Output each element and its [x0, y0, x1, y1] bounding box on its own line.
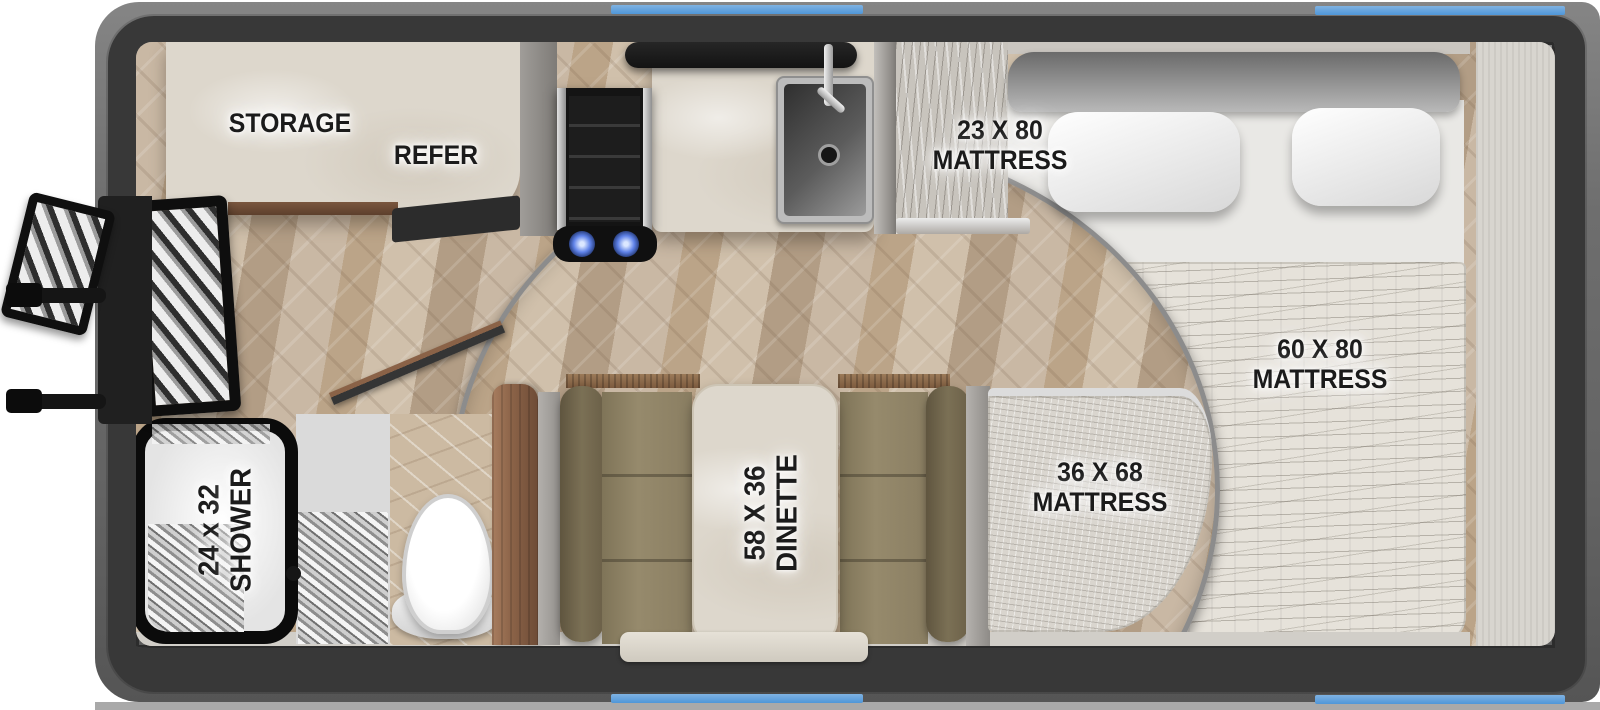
pillow-left	[1048, 112, 1240, 212]
bedroom-divider-wall	[966, 386, 990, 646]
shower-word: SHOWER	[226, 468, 258, 592]
dinette-label: 58 X 36 DINETTE	[740, 454, 805, 572]
dinette-backrest-left	[560, 386, 604, 642]
bunk-ledge	[896, 218, 1030, 234]
shower-drain-icon	[286, 566, 301, 581]
storage-label: STORAGE	[229, 108, 351, 138]
side-mattress-label: 36 X 68 MATTRESS	[1033, 457, 1168, 517]
cooktop-rail-right	[643, 88, 652, 230]
main-mattress-word: MATTRESS	[1253, 364, 1388, 394]
burner-icon-right	[613, 231, 639, 257]
cabinet-side-panel	[520, 42, 557, 236]
shower-size: 24 x 32	[194, 468, 226, 592]
window-marker-bottom-left	[611, 694, 863, 703]
side-mattress-word: MATTRESS	[1033, 487, 1168, 517]
cooktop-burner-base	[553, 226, 657, 262]
main-mattress-size: 60 X 80	[1253, 334, 1388, 364]
dinette-bench-left	[602, 392, 692, 644]
wardrobe-partition	[492, 384, 538, 645]
refrigerator-label: REFER	[394, 140, 478, 170]
dinette-backrest-right	[926, 386, 970, 642]
window-marker-top-right	[1315, 6, 1565, 15]
floorplan-page: { "floorplan": { "labels": { "storage": …	[0, 0, 1600, 710]
bunk-mattress-size: 23 X 80	[933, 115, 1068, 145]
pillow-right	[1292, 108, 1440, 206]
main-mattress-label: 60 X 80 MATTRESS	[1253, 334, 1388, 394]
bunk-mattress-word: MATTRESS	[933, 145, 1068, 175]
shower-curtain-top	[152, 424, 270, 444]
dinette-floor-platform	[620, 632, 868, 662]
cooktop-rail-left	[557, 88, 566, 230]
dinette-word: DINETTE	[772, 454, 804, 572]
right-interior-wall	[1470, 42, 1555, 646]
burner-icon-left	[569, 231, 595, 257]
sink-drain-icon	[818, 144, 840, 166]
cabinet-wood-edge	[228, 202, 398, 215]
cooktop-body	[557, 88, 652, 230]
interior-area: STORAGE REFER 23 X 80 MATTRESS 60 X 80 M…	[136, 42, 1555, 646]
bunk-mattress-label: 23 X 80 MATTRESS	[933, 115, 1068, 175]
side-mattress-size: 36 X 68	[1033, 457, 1168, 487]
shower-label: 24 x 32 SHOWER	[194, 468, 259, 592]
dinette-trim-right	[838, 374, 950, 388]
step-foot-top	[6, 283, 42, 307]
partition-edge	[538, 392, 560, 645]
sofa-backrest	[1008, 52, 1460, 112]
step-foot-bottom	[6, 389, 42, 413]
range-hood-shelf	[625, 42, 857, 68]
dinette-size: 58 X 36	[740, 454, 772, 572]
window-marker-top-left	[611, 5, 863, 14]
dinette-bench-right	[840, 392, 928, 644]
shower-curtain-right	[298, 512, 388, 644]
cooktop-grate	[569, 96, 640, 222]
window-marker-bottom-right	[1315, 695, 1565, 704]
